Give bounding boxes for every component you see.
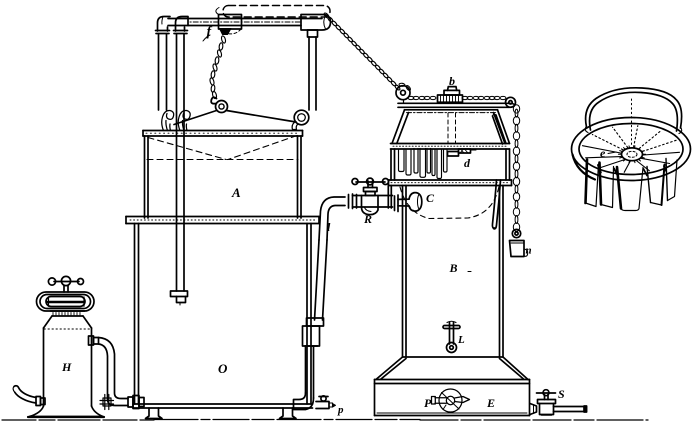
svg-text:p: p	[337, 404, 344, 416]
svg-text:H: H	[61, 360, 72, 374]
svg-text:e: e	[600, 146, 606, 160]
svg-text:L: L	[457, 334, 465, 346]
svg-text:B: B	[449, 261, 458, 275]
svg-text:O: O	[218, 361, 228, 376]
svg-text:b: b	[449, 74, 455, 88]
svg-text:C: C	[426, 191, 435, 205]
svg-text:d: d	[464, 156, 471, 170]
svg-text:f: f	[207, 25, 213, 40]
svg-text:l: l	[327, 220, 331, 234]
svg-text:n: n	[526, 245, 532, 257]
svg-text:A: A	[231, 185, 241, 200]
svg-text:S: S	[558, 387, 565, 401]
svg-text:P: P	[424, 396, 432, 410]
svg-text:E: E	[486, 396, 495, 410]
svg-text:R: R	[363, 212, 372, 226]
